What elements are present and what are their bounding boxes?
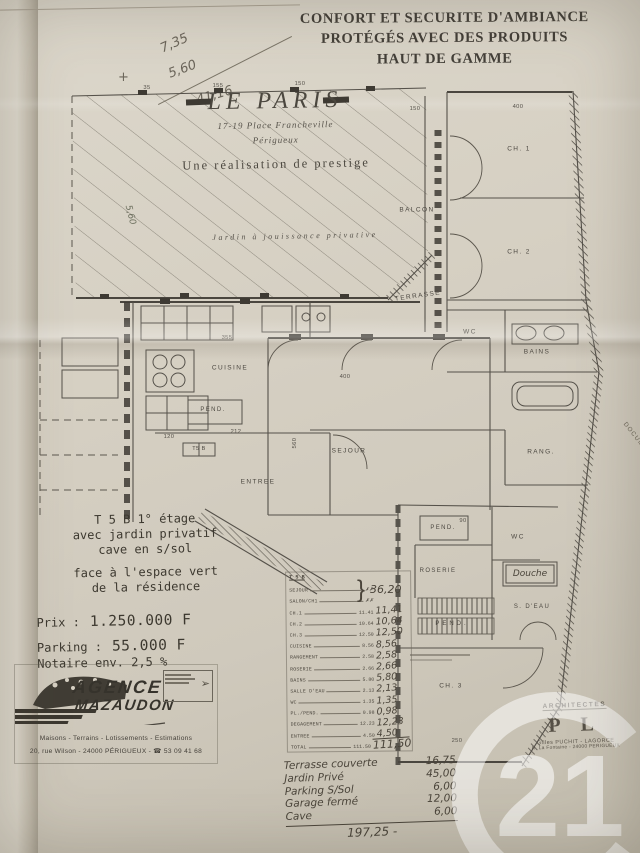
paper-crease-middle	[0, 318, 640, 360]
extras-list: Terrasse couverte16,75 Jardin Privé45,00…	[284, 754, 459, 842]
dim-560: 560	[292, 438, 298, 449]
table-row: CUISINE8.568,56	[290, 637, 409, 649]
price-label: Prix :	[36, 615, 80, 631]
table-row: CH.312.5012,50	[290, 626, 409, 638]
table-row: DEGAGEMENT12.2312,23	[291, 716, 410, 728]
room-label-ch1: CH. 1	[507, 146, 531, 153]
table-row-total: TOTAL111.50111,50	[291, 738, 410, 750]
price-value: 1.250.000 F	[90, 611, 192, 631]
table-row: CH.111.4111,41	[289, 604, 408, 616]
agency-tagline: Maisons - Terrains - Lotissements - Esti…	[15, 735, 217, 742]
residence-title: LE PARIS	[147, 86, 402, 117]
arrow-icon: ➢	[201, 677, 210, 691]
room-label-douche: Douche	[513, 569, 547, 579]
areas-brace: }	[357, 576, 365, 604]
areas-brace-value: 36,20	[370, 583, 402, 596]
room-label-pend-3: PEND.	[435, 621, 468, 627]
price-row: Prix : 1.250.000 F	[36, 610, 256, 632]
architect-logo: P L	[512, 712, 639, 739]
architect-heading: ARCHITECTES	[542, 701, 606, 711]
table-row: ROSERIE2.662,66	[290, 660, 409, 672]
dim-120: 120	[164, 434, 175, 440]
room-label-entree: ENTREE	[241, 479, 276, 486]
room-label-pend-1: PEND.	[200, 407, 225, 413]
agency-name-line1: AGENCE	[72, 677, 164, 698]
room-label-pend-2: PEND.	[430, 525, 455, 531]
agency-address: 20, rue Wilson - 24000 PÉRIGUEUX - ☎ 53 …	[15, 747, 217, 755]
room-label-balcon: BALCON	[399, 207, 434, 214]
room-label-roserie: ROSERIE	[420, 568, 457, 574]
table-row: WC1.351,35	[290, 693, 409, 705]
agency-stamp: AGENCE MAZAUDON ➢ Maisons - Terrains - L…	[14, 664, 218, 764]
dim-35: 35	[143, 85, 150, 91]
parking-value: 55.000 F	[112, 636, 186, 655]
areas-table: T 5 B SEJOUR✗✗ SALON/CH1✗✗ CH.111.4111,4…	[285, 570, 413, 752]
dim-400b: 400	[513, 104, 524, 110]
room-label-ch3: CH. 3	[439, 683, 463, 690]
dim-400: 400	[340, 374, 351, 380]
parking-label: Parking :	[37, 640, 102, 656]
table-row: BAINS5.805,80	[290, 671, 409, 683]
table-row: RANGEMENT2.582,58	[290, 648, 409, 660]
architect-block: ARCHITECTES P L Gilles PUCHIT - LAGORCE …	[511, 692, 639, 752]
garden-title-block: LE PARIS 17-19 Place Francheville Périgu…	[147, 86, 403, 174]
dim-155: 155	[213, 83, 224, 89]
dim-250: 250	[452, 738, 463, 744]
room-label-cuisine: CUISINE	[212, 365, 248, 372]
exterior-walls	[425, 91, 599, 766]
dim-90: 90	[459, 518, 466, 524]
parking-closets	[40, 338, 118, 515]
room-label-wc-2: WC	[511, 534, 525, 541]
agency-stamp-sidebox: ➢	[163, 670, 213, 702]
table-row: SALLE D'EAU2.132,13	[290, 682, 409, 694]
areas-table-header: T 5 B	[289, 573, 408, 580]
table-row: PL./PEND.0.980,98	[290, 704, 409, 716]
residence-address-1: 17-19 Place Francheville	[148, 118, 403, 132]
room-label-sejour: SEJOUR	[332, 448, 367, 455]
room-label-ch2: CH. 2	[507, 249, 531, 256]
agency-name-line2: MAZAUDON	[74, 697, 176, 714]
dim-150b: 150	[295, 81, 306, 87]
scanned-floorplan-document: CONFORT ET SECURITE D'AMBIANCE PROTÉGÉS …	[0, 0, 640, 853]
listing-block: T 5 B 1° étage avec jardin privatif cave…	[35, 510, 258, 672]
residence-address-2: Périgueux	[148, 133, 403, 147]
dim-212: 212	[231, 429, 242, 435]
table-row: CH.210.6410,64	[290, 615, 409, 627]
room-label-sdeau: S. D'EAU	[514, 604, 550, 610]
unit-tag: T5 B	[192, 446, 206, 452]
dim-150: 150	[410, 106, 421, 112]
room-label-rang: RANG.	[527, 449, 555, 456]
